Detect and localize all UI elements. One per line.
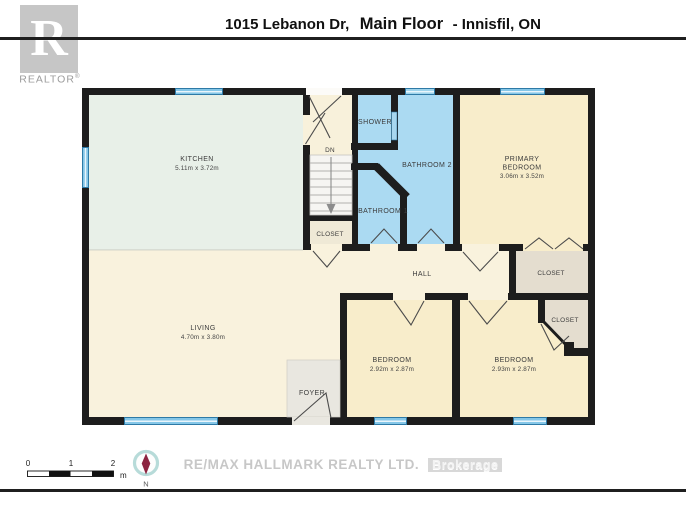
bedroom-right-closet-label: CLOSET [551,317,578,324]
kitchen-floor [89,95,303,250]
door-opening [523,244,583,251]
stairs-dn-label: DN [325,147,335,154]
window [513,417,547,425]
door-opening [468,293,508,300]
bottom-rule [0,489,686,492]
shower-label: SHOWER [358,119,392,126]
floor-plan-drawing: KITCHEN 5.11m x 3.72m SHOWER BATHROOM 2 … [0,0,686,512]
wall [400,194,407,244]
window [124,417,218,425]
wall [351,143,398,150]
wall [538,300,545,323]
shower-glass [392,112,398,140]
door-opening [306,88,342,95]
kitchen-label: KITCHEN [180,156,214,163]
brokerage-type: Brokerage [428,458,502,472]
door-opening [303,115,310,145]
door-opening [417,244,445,251]
window [374,417,407,425]
bathroom1-label: BATHROOM 1 [358,208,408,215]
window [405,88,435,95]
scale-unit: m [120,471,127,480]
bedroom-right-label: BEDROOM [495,357,534,364]
door-opening [311,244,342,251]
primary-bedroom-label-2: BEDROOM [503,165,542,172]
hall-label: HALL [412,271,431,278]
stairs-closet-label: CLOSET [316,231,343,238]
bedroom-left-label: BEDROOM [373,357,412,364]
primary-bedroom-dims: 3.06m x 3.52m [500,173,544,180]
window [175,88,223,95]
living-dims: 4.70m x 3.80m [181,334,225,341]
wall [564,348,588,356]
foyer-label: FOYER [299,390,325,397]
bathroom2-label: BATHROOM 2 [402,162,452,169]
kitchen-dims: 5.11m x 3.72m [175,165,219,172]
floor-plan-page: R REALTOR® 1015 Lebanon Dr, Main Floor -… [0,0,686,512]
foyer-floor [287,360,340,417]
compass-north-label: N [143,480,148,489]
door-opening [393,293,425,300]
stair-landing-floor [310,95,352,155]
bedroom-left-dims: 2.92m x 2.87m [370,366,414,373]
window [82,147,89,188]
door-opening [370,244,398,251]
brokerage-watermark: RE/MAX HALLMARK REALTY LTD.Brokerage [0,457,686,472]
living-label: LIVING [190,325,215,332]
window [500,88,545,95]
door-opening [462,244,499,251]
brokerage-name: RE/MAX HALLMARK REALTY LTD. [184,457,420,472]
hall-floor [303,251,509,293]
primary-closet-label: CLOSET [537,270,564,277]
primary-bedroom-label-1: PRIMARY [505,156,540,163]
open-boundary-line [89,249,303,250]
bedroom-right-dims: 2.93m x 2.87m [492,366,536,373]
